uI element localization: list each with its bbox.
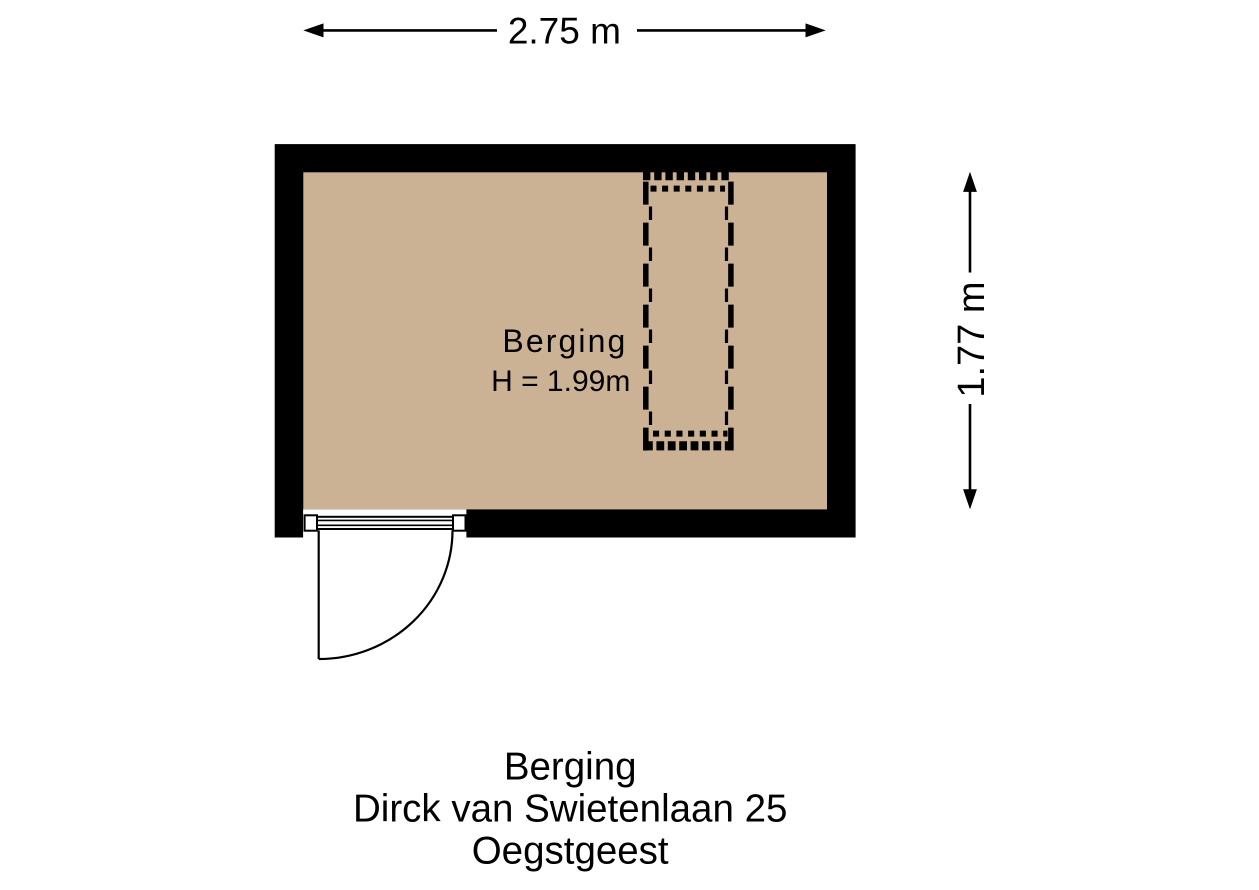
svg-text:H = 1.99m: H = 1.99m [491, 365, 630, 398]
svg-text:Berging: Berging [504, 745, 637, 788]
svg-text:2.75 m: 2.75 m [508, 11, 621, 52]
svg-text:Berging: Berging [502, 323, 627, 359]
svg-text:1.77 m: 1.77 m [951, 282, 993, 398]
svg-text:Oegstgeest: Oegstgeest [472, 829, 669, 872]
svg-text:Dirck van Swietenlaan 25: Dirck van Swietenlaan 25 [353, 787, 787, 830]
